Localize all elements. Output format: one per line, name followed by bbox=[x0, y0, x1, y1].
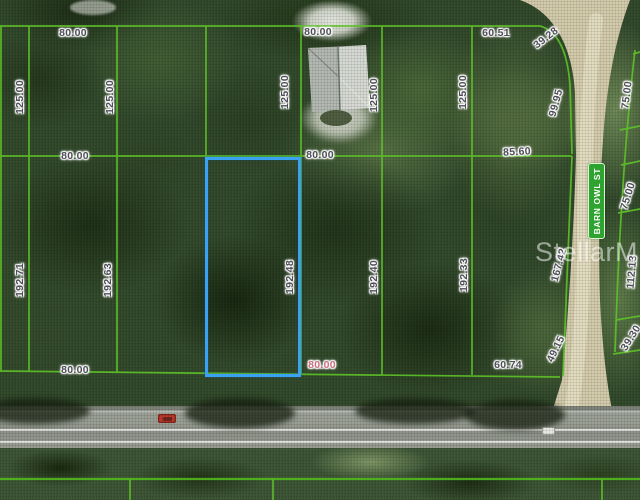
dimension-label: 125.00 bbox=[368, 78, 380, 112]
street-sign-barn-owl: BARN OWL ST bbox=[588, 163, 605, 239]
dimension-label: 60.74 bbox=[494, 359, 522, 371]
dimension-label-selected-depth: 192.48 bbox=[284, 260, 296, 294]
dimension-label: 125.00 bbox=[279, 75, 291, 109]
dimension-label: 192.33 bbox=[458, 258, 470, 292]
dimension-label: 192.63 bbox=[102, 263, 114, 297]
aerial-parcel-map: 80.00 80.00 60.51 39.28 125.00 125.00 12… bbox=[0, 0, 640, 500]
dimension-label: 80.00 bbox=[61, 364, 89, 376]
dimension-label: 80.00 bbox=[306, 149, 334, 161]
dimension-label: 80.00 bbox=[59, 27, 87, 39]
stellar-mls-watermark: StellarMLS bbox=[535, 237, 640, 268]
dimension-label: 125.00 bbox=[14, 80, 26, 114]
dimension-label: 125.00 bbox=[104, 80, 116, 114]
dimension-label: 80.00 bbox=[61, 150, 89, 162]
dimension-label: 192.71 bbox=[14, 263, 26, 297]
dimension-label: 60.51 bbox=[482, 27, 510, 39]
dimension-label: 125.00 bbox=[457, 75, 469, 109]
dimension-label: 80.00 bbox=[304, 26, 332, 38]
dimension-label: 192.40 bbox=[368, 260, 380, 294]
dimension-label: 85.60 bbox=[503, 145, 531, 158]
dimension-label-selected-frontage: 80.00 bbox=[308, 359, 336, 371]
street-sign-label: BARN OWL ST bbox=[592, 168, 602, 234]
